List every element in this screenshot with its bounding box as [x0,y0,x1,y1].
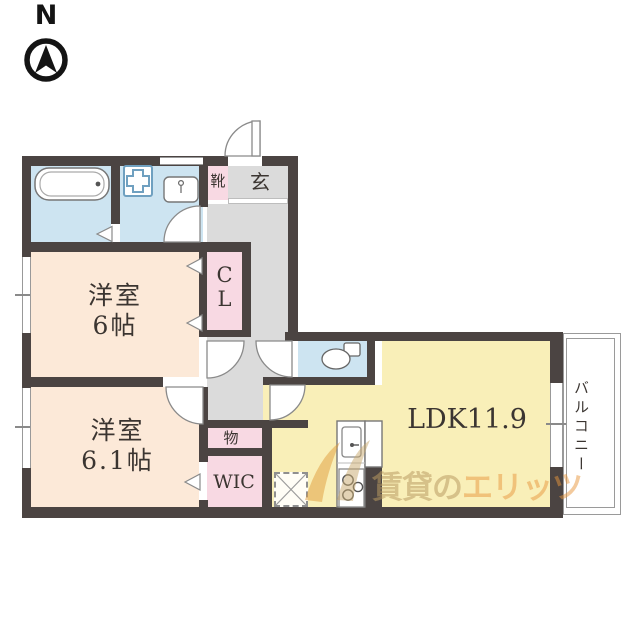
bath-door-triangle [97,227,112,242]
compass-label: N [32,0,60,32]
entrance-label: 玄 [242,170,278,194]
bathtub-icon [35,168,109,200]
wic-door-triangle [185,474,200,490]
washbasin-icon [164,177,198,202]
entry-door [225,121,260,156]
ldk-door-arc [270,385,305,420]
floor-plan: N 洋室 6帖 洋室 6.1帖 LDK11.9 CL WIC 物 玄 靴 バルコ… [0,0,640,640]
ldk-label: LDK11.9 [377,404,557,436]
room1-size: 6帖 [40,311,190,341]
room1-name: 洋室 [40,281,190,311]
closet-door-triangle-top [187,258,202,274]
room1-label: 洋室 6帖 [40,281,190,341]
balcony-label: バルコニー [572,352,590,502]
room1-door-arc [207,341,244,378]
toilet-door-arc [256,341,292,377]
room2-size: 6.1帖 [40,446,195,476]
washing-machine-pan-icon [124,166,152,196]
north-arrow-icon [27,41,65,79]
room2-name: 洋室 [40,416,195,446]
closet-label: CL [213,263,236,311]
refrigerator-x-lines [276,474,306,505]
storage-label: 物 [216,429,246,447]
toilet-icon [322,343,360,369]
shoe-cabinet-label: 靴 [208,172,228,190]
room2-label: 洋室 6.1帖 [40,416,195,476]
wic-label: WIC [205,471,263,494]
washroom-door-arc [164,206,200,242]
